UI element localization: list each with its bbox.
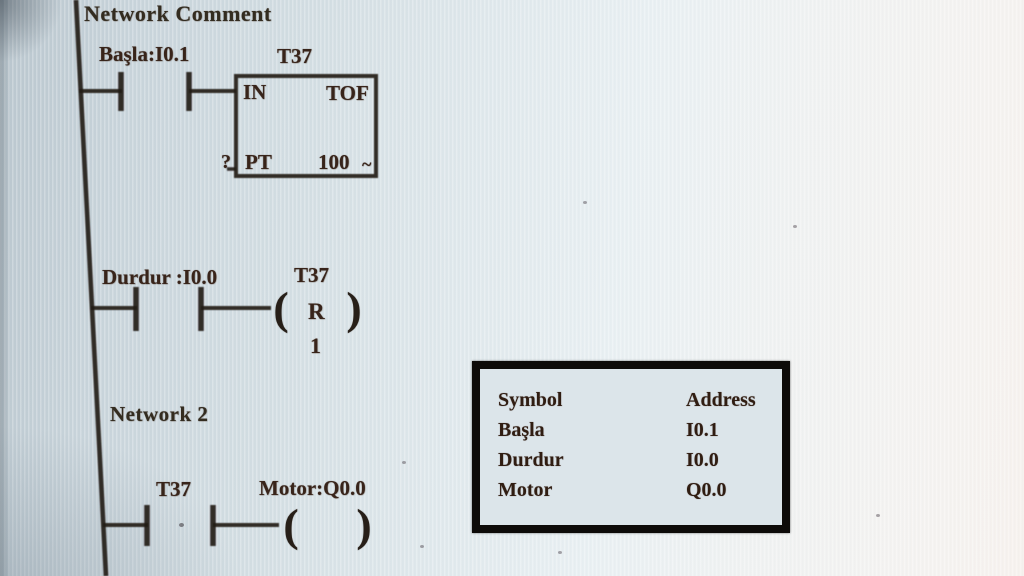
address-cell: I0.1 — [686, 419, 719, 442]
reset-coil-open-paren: ( — [273, 281, 288, 334]
noise-speck — [793, 225, 797, 228]
noise-speck — [420, 545, 424, 548]
contact-label-durdur: Durdur :I0.0 — [102, 266, 217, 288]
reset-coil-letter: R — [308, 300, 325, 324]
timer-name-label: T37 — [277, 45, 312, 67]
address-column-header: Address — [686, 389, 756, 412]
reset-coil-close-paren: ) — [346, 281, 361, 334]
symbol-table-row: Başla I0.1 — [498, 419, 782, 443]
address-cell: Q0.0 — [686, 479, 727, 502]
symbol-cell: Motor — [498, 479, 552, 502]
symbol-cell: Başla — [498, 419, 545, 442]
contact-label-t37: T37 — [156, 478, 191, 500]
symbol-column-header: Symbol — [498, 389, 562, 412]
network2-label: Network 2 — [110, 403, 208, 425]
motor-coil-close-paren: ) — [356, 498, 371, 551]
noise-speck — [876, 514, 880, 517]
noise-speck — [402, 461, 406, 464]
ladder-diagram-photo: Network Comment Başla:I0.1 T37 IN TOF ? … — [0, 0, 1024, 576]
symbol-table-header-row: Symbol Address — [498, 389, 782, 413]
symbol-table: Symbol Address Başla I0.1 Durdur I0.0 Mo… — [472, 361, 790, 533]
address-cell: I0.0 — [686, 449, 719, 472]
reset-coil-operand: 1 — [310, 334, 321, 357]
noise-speck — [583, 201, 587, 204]
noise-speck — [179, 523, 184, 527]
noise-speck — [558, 551, 562, 554]
symbol-cell: Durdur — [498, 449, 564, 472]
timer-preset-suffix: ~ — [362, 155, 371, 174]
timer-preset-value: 100 — [318, 151, 350, 173]
network-comment-label: Network Comment — [84, 2, 272, 25]
timer-pt-label: PT — [245, 151, 272, 173]
timer-in-label: IN — [243, 81, 266, 103]
symbol-table-row: Motor Q0.0 — [498, 479, 782, 503]
timer-type-label: TOF — [326, 82, 369, 104]
symbol-table-row: Durdur I0.0 — [498, 449, 782, 473]
motor-coil-label: Motor:Q0.0 — [259, 477, 366, 499]
reset-coil-name: T37 — [294, 264, 329, 286]
motor-coil-open-paren: ( — [283, 498, 298, 551]
contact-label-basla: Başla:I0.1 — [99, 43, 189, 65]
timer-pt-operand: ? — [221, 152, 231, 173]
